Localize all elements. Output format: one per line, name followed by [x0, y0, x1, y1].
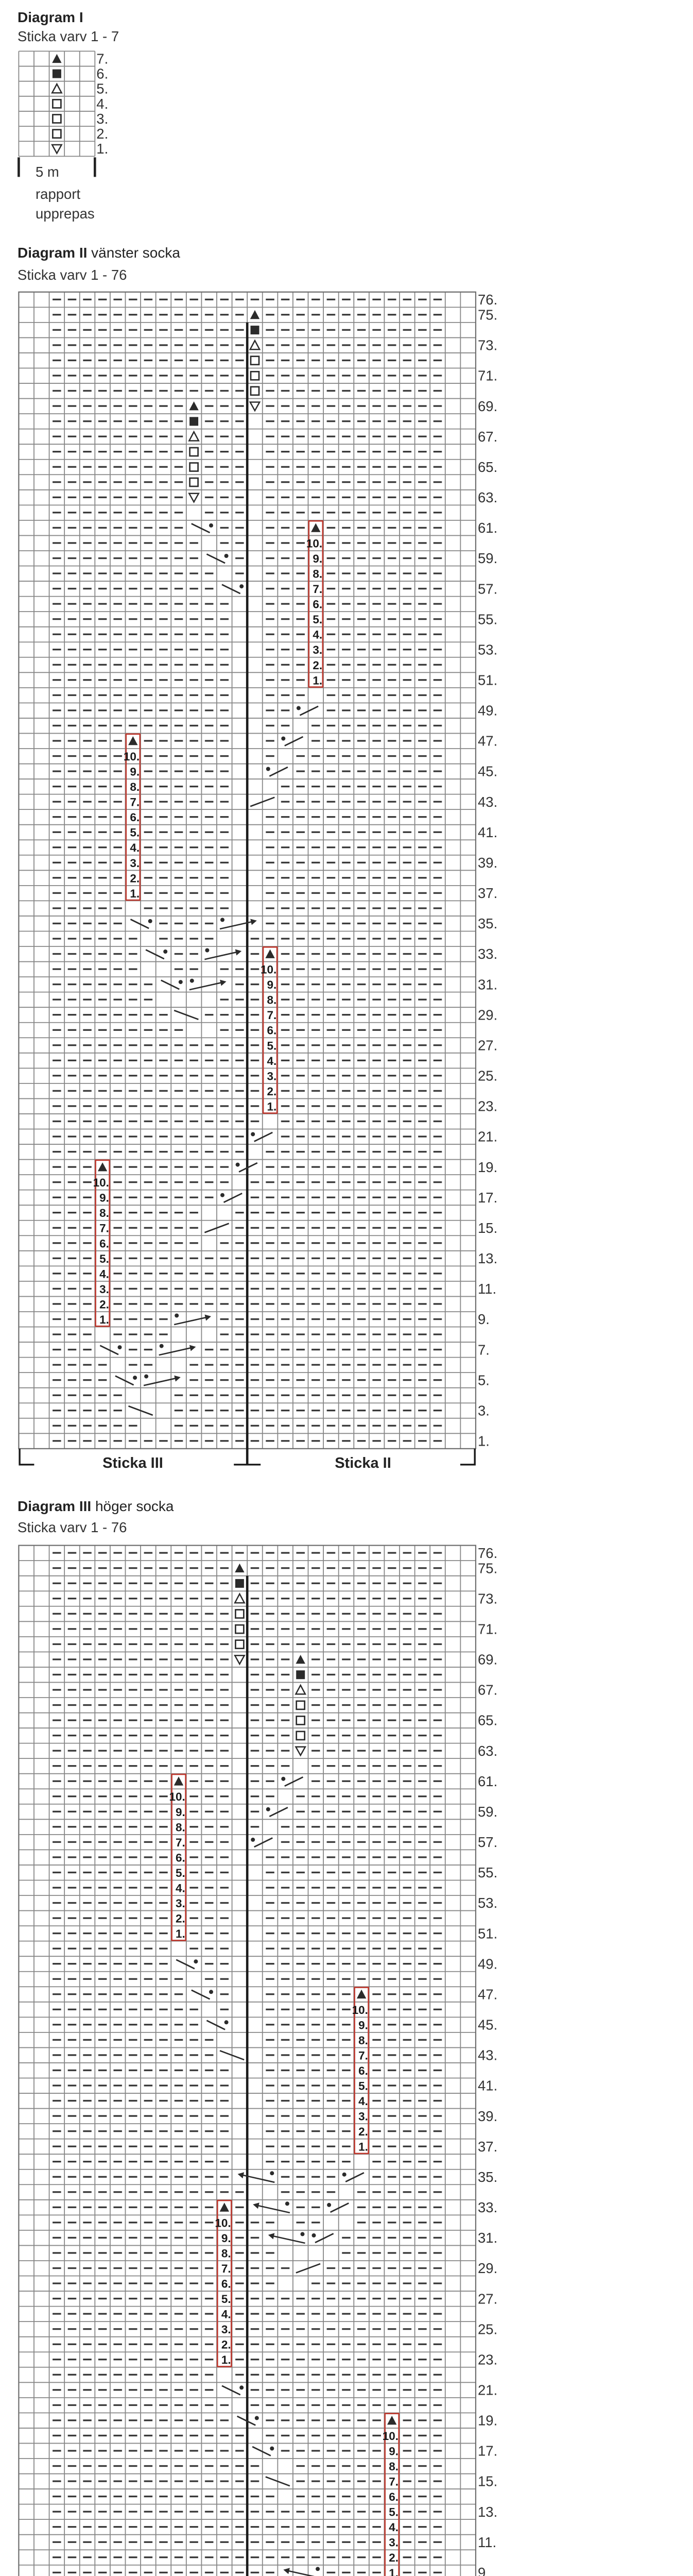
svg-text:25.: 25.: [478, 2321, 497, 2337]
svg-text:4.: 4.: [358, 2095, 368, 2108]
svg-text:3.: 3.: [313, 643, 322, 656]
svg-text:10.: 10.: [124, 750, 140, 763]
svg-text:6.: 6.: [96, 66, 108, 82]
svg-text:10.: 10.: [383, 2430, 399, 2443]
svg-text:2.: 2.: [358, 2125, 368, 2138]
svg-text:5.: 5.: [389, 2506, 399, 2519]
svg-text:7.: 7.: [389, 2476, 399, 2488]
svg-text:4.: 4.: [96, 96, 108, 112]
svg-text:Sticka II: Sticka II: [335, 1455, 391, 1471]
svg-text:76.: 76.: [478, 292, 497, 308]
svg-text:71.: 71.: [478, 368, 497, 384]
svg-text:11.: 11.: [478, 2534, 496, 2550]
svg-text:3.: 3.: [99, 1283, 109, 1296]
svg-text:4.: 4.: [389, 2521, 399, 2534]
svg-text:19.: 19.: [478, 2413, 497, 2429]
svg-text:23.: 23.: [478, 1098, 497, 1114]
svg-text:9.: 9.: [176, 1806, 185, 1819]
svg-text:7.: 7.: [221, 2262, 231, 2275]
svg-text:4.: 4.: [267, 1055, 277, 1067]
svg-text:8.: 8.: [389, 2460, 399, 2473]
svg-text:5.: 5.: [221, 2293, 231, 2306]
svg-text:61.: 61.: [478, 1773, 497, 1789]
svg-text:2.: 2.: [130, 872, 140, 885]
svg-text:5.: 5.: [478, 1372, 490, 1388]
svg-text:55.: 55.: [478, 611, 497, 627]
svg-text:6.: 6.: [358, 2064, 368, 2077]
svg-text:19.: 19.: [478, 1159, 497, 1175]
svg-text:9.: 9.: [358, 2019, 368, 2031]
svg-text:2.: 2.: [96, 126, 108, 142]
svg-text:6.: 6.: [176, 1851, 185, 1864]
svg-text:7.: 7.: [176, 1836, 185, 1849]
svg-text:9.: 9.: [478, 2565, 490, 2576]
svg-text:Diagram II vänster socka: Diagram II vänster socka: [18, 245, 180, 261]
svg-text:41.: 41.: [478, 2078, 497, 2094]
svg-text:8.: 8.: [99, 1207, 109, 1219]
svg-text:4.: 4.: [130, 841, 140, 854]
svg-text:9.: 9.: [221, 2232, 231, 2245]
svg-text:8.: 8.: [130, 781, 140, 793]
svg-text:5.: 5.: [130, 826, 140, 839]
svg-text:45.: 45.: [478, 2017, 497, 2033]
svg-text:4.: 4.: [313, 629, 322, 641]
svg-text:27.: 27.: [478, 1038, 497, 1054]
svg-text:upprepas: upprepas: [36, 206, 95, 222]
svg-text:10.: 10.: [169, 1790, 185, 1803]
svg-text:6.: 6.: [221, 2278, 231, 2291]
svg-text:39.: 39.: [478, 855, 497, 871]
svg-text:7.: 7.: [478, 1342, 490, 1358]
svg-text:10.: 10.: [306, 537, 322, 550]
svg-text:29.: 29.: [478, 1007, 497, 1023]
svg-text:35.: 35.: [478, 2169, 497, 2185]
svg-text:1.: 1.: [267, 1100, 277, 1113]
svg-text:47.: 47.: [478, 733, 497, 749]
svg-text:5.: 5.: [96, 81, 108, 97]
svg-text:35.: 35.: [478, 916, 497, 931]
svg-text:2.: 2.: [221, 2338, 231, 2351]
svg-text:25.: 25.: [478, 1068, 497, 1084]
svg-text:73.: 73.: [478, 337, 497, 353]
svg-text:57.: 57.: [478, 581, 497, 597]
svg-text:75.: 75.: [478, 307, 497, 323]
svg-text:55.: 55.: [478, 1865, 497, 1880]
svg-text:1.: 1.: [358, 2141, 368, 2154]
svg-text:8.: 8.: [267, 994, 277, 1007]
svg-text:73.: 73.: [478, 1590, 497, 1606]
svg-text:2.: 2.: [313, 659, 322, 672]
svg-text:2.: 2.: [99, 1298, 109, 1311]
svg-text:67.: 67.: [478, 429, 497, 445]
svg-text:53.: 53.: [478, 641, 497, 657]
svg-text:9.: 9.: [130, 766, 140, 778]
svg-text:69.: 69.: [478, 398, 497, 414]
svg-text:61.: 61.: [478, 520, 497, 536]
svg-text:7.: 7.: [130, 796, 140, 809]
svg-text:5 m: 5 m: [36, 164, 59, 180]
svg-text:59.: 59.: [478, 550, 497, 566]
svg-text:47.: 47.: [478, 1987, 497, 2003]
svg-text:59.: 59.: [478, 1804, 497, 1820]
svg-text:Diagram I: Diagram I: [18, 9, 83, 25]
svg-text:45.: 45.: [478, 764, 497, 779]
svg-text:Sticka varv 1 - 7: Sticka varv 1 - 7: [18, 28, 119, 44]
svg-text:3.: 3.: [176, 1897, 185, 1910]
svg-text:65.: 65.: [478, 459, 497, 475]
svg-text:6.: 6.: [389, 2490, 399, 2503]
svg-text:17.: 17.: [478, 2443, 497, 2459]
svg-text:21.: 21.: [478, 2382, 497, 2398]
svg-text:4.: 4.: [176, 1882, 185, 1895]
svg-text:33.: 33.: [478, 946, 497, 962]
svg-text:23.: 23.: [478, 2351, 497, 2367]
svg-text:53.: 53.: [478, 1895, 497, 1911]
svg-text:13.: 13.: [478, 1250, 497, 1266]
svg-text:31.: 31.: [478, 976, 497, 992]
svg-text:15.: 15.: [478, 1220, 497, 1236]
svg-text:9.: 9.: [267, 978, 277, 991]
svg-text:7.: 7.: [96, 50, 108, 66]
svg-text:8.: 8.: [313, 568, 322, 581]
svg-text:4.: 4.: [99, 1267, 109, 1280]
svg-text:7.: 7.: [313, 583, 322, 596]
svg-text:65.: 65.: [478, 1713, 497, 1728]
svg-text:rapport: rapport: [36, 186, 80, 202]
svg-text:4.: 4.: [221, 2308, 231, 2321]
svg-text:71.: 71.: [478, 1621, 497, 1637]
svg-text:49.: 49.: [478, 1956, 497, 1972]
svg-text:8.: 8.: [358, 2034, 368, 2047]
svg-text:57.: 57.: [478, 1834, 497, 1850]
svg-text:9.: 9.: [389, 2445, 399, 2458]
svg-text:5.: 5.: [358, 2080, 368, 2093]
svg-text:3.: 3.: [221, 2323, 231, 2336]
svg-text:11.: 11.: [478, 1281, 496, 1297]
svg-text:13.: 13.: [478, 2504, 497, 2520]
svg-text:1.: 1.: [176, 1927, 185, 1940]
svg-text:69.: 69.: [478, 1652, 497, 1668]
svg-text:Sticka varv 1 - 76: Sticka varv 1 - 76: [18, 1519, 127, 1535]
svg-text:3.: 3.: [478, 1402, 490, 1418]
svg-text:7.: 7.: [99, 1222, 109, 1235]
svg-text:29.: 29.: [478, 2260, 497, 2276]
svg-text:10.: 10.: [261, 963, 276, 976]
svg-text:9.: 9.: [478, 1311, 490, 1327]
svg-text:9.: 9.: [99, 1192, 109, 1205]
svg-text:21.: 21.: [478, 1129, 497, 1145]
svg-text:31.: 31.: [478, 2230, 497, 2246]
svg-text:37.: 37.: [478, 885, 497, 901]
svg-text:5.: 5.: [99, 1252, 109, 1265]
svg-text:51.: 51.: [478, 672, 497, 688]
svg-text:15.: 15.: [478, 2473, 497, 2489]
svg-text:1.: 1.: [99, 1313, 109, 1326]
svg-text:5.: 5.: [313, 613, 322, 626]
svg-text:10.: 10.: [352, 2004, 368, 2016]
svg-text:43.: 43.: [478, 2047, 497, 2063]
svg-text:41.: 41.: [478, 824, 497, 840]
svg-text:5.: 5.: [267, 1039, 277, 1052]
svg-text:5.: 5.: [176, 1867, 185, 1879]
svg-text:1.: 1.: [313, 674, 322, 687]
svg-text:76.: 76.: [478, 1545, 497, 1561]
svg-text:8.: 8.: [221, 2247, 231, 2260]
svg-text:49.: 49.: [478, 703, 497, 719]
svg-text:10.: 10.: [215, 2216, 231, 2229]
svg-text:2.: 2.: [389, 2551, 399, 2564]
svg-text:6.: 6.: [130, 811, 140, 824]
svg-text:Diagram III höger socka: Diagram III höger socka: [18, 1498, 174, 1514]
svg-text:7.: 7.: [267, 1009, 277, 1022]
svg-text:1.: 1.: [130, 887, 140, 900]
svg-text:3.: 3.: [389, 2536, 399, 2549]
svg-text:Sticka III: Sticka III: [102, 1455, 163, 1471]
svg-text:1.: 1.: [389, 2567, 399, 2576]
svg-text:3.: 3.: [96, 111, 108, 127]
svg-text:1.: 1.: [478, 1433, 490, 1449]
svg-text:3.: 3.: [130, 857, 140, 870]
svg-text:1.: 1.: [96, 141, 108, 157]
svg-text:2.: 2.: [267, 1085, 277, 1098]
svg-text:Sticka varv 1 - 76: Sticka varv 1 - 76: [18, 267, 127, 283]
svg-text:6.: 6.: [99, 1237, 109, 1250]
svg-text:17.: 17.: [478, 1190, 497, 1206]
svg-text:63.: 63.: [478, 489, 497, 505]
svg-text:3.: 3.: [267, 1070, 277, 1082]
svg-text:63.: 63.: [478, 1743, 497, 1759]
svg-text:43.: 43.: [478, 794, 497, 810]
svg-text:7.: 7.: [358, 2049, 368, 2062]
svg-text:8.: 8.: [176, 1821, 185, 1834]
svg-text:1.: 1.: [221, 2353, 231, 2366]
svg-text:75.: 75.: [478, 1560, 497, 1576]
svg-text:10.: 10.: [93, 1176, 109, 1189]
svg-text:67.: 67.: [478, 1682, 497, 1698]
svg-text:3.: 3.: [358, 2110, 368, 2123]
svg-text:39.: 39.: [478, 2108, 497, 2124]
svg-text:27.: 27.: [478, 2291, 497, 2307]
svg-text:9.: 9.: [313, 552, 322, 565]
svg-text:33.: 33.: [478, 2199, 497, 2215]
svg-text:2.: 2.: [176, 1912, 185, 1925]
svg-text:51.: 51.: [478, 1925, 497, 1941]
svg-text:6.: 6.: [313, 598, 322, 611]
svg-text:37.: 37.: [478, 2139, 497, 2155]
svg-text:6.: 6.: [267, 1024, 277, 1037]
